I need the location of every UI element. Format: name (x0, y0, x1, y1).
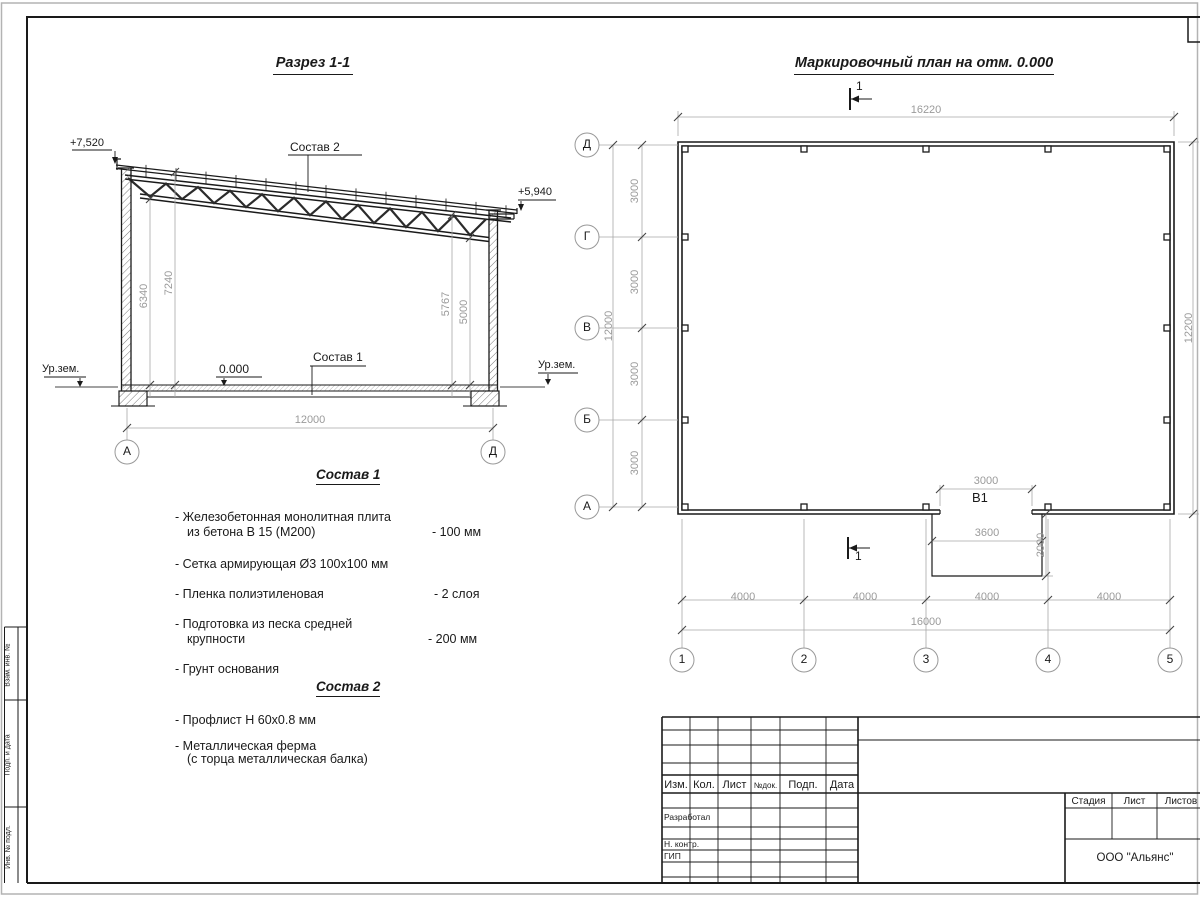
ground-level-left: Ур.зем. (42, 363, 79, 375)
leader-label-sostav1: Состав 1 (313, 351, 363, 364)
dim-porch-3600: 3600 (957, 527, 1017, 539)
comp1-item1-line2: из бетона В 15 (М200) (187, 526, 315, 540)
sheet-frame (2, 3, 1200, 894)
tb-col-data: Дата (826, 779, 858, 791)
floor-slab-hatch (122, 385, 498, 391)
tb-col-list: Лист (718, 779, 751, 791)
plan-axis-col-4: 4 (1036, 653, 1060, 666)
section-cut-marks (848, 88, 872, 559)
cut-mark-bottom-label: 1 (855, 550, 862, 563)
drawing-linework (0, 0, 1200, 900)
tb-stage-stadiya: Стадия (1065, 796, 1112, 807)
comp1-title: Состав 1 (316, 468, 380, 485)
tb-company: ООО "Альянс" (1065, 852, 1200, 865)
cut-mark-top-label: 1 (856, 80, 863, 93)
tb-row-gip: ГИП (664, 852, 681, 861)
door-label-b1: B1 (972, 491, 988, 505)
axis-label-d: Д (481, 445, 505, 458)
plan-dim-ticks (609, 113, 1197, 634)
dim-right-12200: 12200 (1183, 298, 1195, 358)
comp1-item1-line1: - Железобетонная монолитная плита (175, 511, 391, 525)
axis-label-a: А (115, 445, 139, 458)
plan-axis-row-d: Д (575, 138, 599, 151)
plan-drawing (575, 88, 1199, 672)
sidestamp-podp: Подп. и дата (5, 703, 17, 808)
dim-bottom-16000: 16000 (896, 616, 956, 628)
dim-bottom-4000-4: 4000 (1079, 591, 1139, 603)
dim-left-3000-3: 3000 (629, 354, 641, 394)
comp1-item4-value: - 200 мм (428, 633, 477, 647)
ground-level-right: Ур.зем. (538, 359, 575, 371)
deck-seams (146, 165, 506, 218)
plan-columns (682, 146, 1170, 510)
sidestamp-inv: Инв. № подл. (5, 810, 17, 884)
plan-title: Маркировочный план на отм. 0.000 (794, 56, 1054, 75)
plan-axis-col-1: 1 (670, 653, 694, 666)
comp2-title: Состав 2 (316, 680, 380, 697)
elevation-top-right: +5,940 (518, 186, 552, 198)
dim-left-3000-1: 3000 (629, 171, 641, 211)
comp1-item2-line1: - Сетка армирующая Ø3 100x100 мм (175, 558, 388, 572)
comp1-item4-line2: крупности (187, 633, 245, 647)
dim-porch-2000: 2000 (1035, 520, 1047, 570)
plan-axis-col-2: 2 (792, 653, 816, 666)
plan-dim-lines (599, 111, 1199, 648)
dim-door-3000: 3000 (956, 475, 1016, 487)
tb-stage-list: Лист (1112, 796, 1157, 807)
leader-label-sostav2: Состав 2 (290, 141, 340, 154)
dim-bottom-4000-2: 4000 (835, 591, 895, 603)
dim-16220: 16220 (896, 104, 956, 116)
comp1-item4-line1: - Подготовка из песка средней (175, 618, 352, 632)
section-title: Разрез 1-1 (273, 56, 353, 75)
dim-bottom-4000-1: 4000 (713, 591, 773, 603)
plan-axis-row-b: Б (575, 413, 599, 426)
tb-row-razrabotal: Разработал (664, 813, 710, 822)
comp1-item1-value: - 100 мм (432, 526, 481, 540)
right-wall-hatch (489, 210, 498, 391)
plan-wall-outer (678, 142, 1174, 514)
plan-axis-col-5: 5 (1158, 653, 1182, 666)
tb-col-podp: Подп. (780, 779, 826, 791)
dim-7240: 7240 (163, 261, 175, 305)
dim-left-12000: 12000 (603, 296, 615, 356)
dim-bottom-4000-3: 4000 (957, 591, 1017, 603)
comp1-item3-line1: - Пленка полиэтиленовая (175, 588, 324, 602)
left-footing (119, 391, 147, 406)
dim-12000-section: 12000 (280, 414, 340, 426)
dim-5000: 5000 (458, 290, 470, 334)
elevation-zero: 0.000 (219, 363, 249, 376)
door-jambs (940, 510, 1032, 514)
left-wall-hatch (122, 168, 132, 391)
plan-axis-row-v: В (575, 321, 599, 334)
tb-stage-listov: Листов (1157, 796, 1200, 807)
right-footing (471, 391, 499, 406)
comp2-item2-line2: (с торца металлическая балка) (187, 753, 368, 767)
comp1-item3-value: - 2 слоя (434, 588, 479, 602)
porch (932, 514, 1042, 576)
elevation-top-left: +7,520 (70, 137, 104, 149)
plan-wall-inner (682, 146, 1170, 510)
dim-5767: 5767 (440, 282, 452, 326)
dim-left-3000-4: 3000 (629, 443, 641, 483)
tb-col-izm: Изм. (662, 779, 690, 791)
plan-axis-col-3: 3 (914, 653, 938, 666)
drawing-sheet: Разрез 1-1 Маркировочный план на отм. 0.… (0, 0, 1200, 900)
tb-col-kol: Кол. (690, 779, 718, 791)
comp2-item1-line1: - Профлист Н 60x0.8 мм (175, 714, 316, 728)
dim-left-3000-2: 3000 (629, 262, 641, 302)
tb-row-nkontr: Н. контр. (664, 840, 699, 849)
dim-6340: 6340 (138, 274, 150, 318)
comp1-item5-line1: - Грунт основания (175, 663, 279, 677)
sidestamp-vzam: Взам. инв. № (5, 630, 17, 701)
section-dim-lines (127, 172, 493, 440)
tb-col-ndok: №док. (751, 782, 780, 791)
plan-axis-row-a: А (575, 500, 599, 513)
plan-axis-row-g: Г (575, 230, 599, 243)
